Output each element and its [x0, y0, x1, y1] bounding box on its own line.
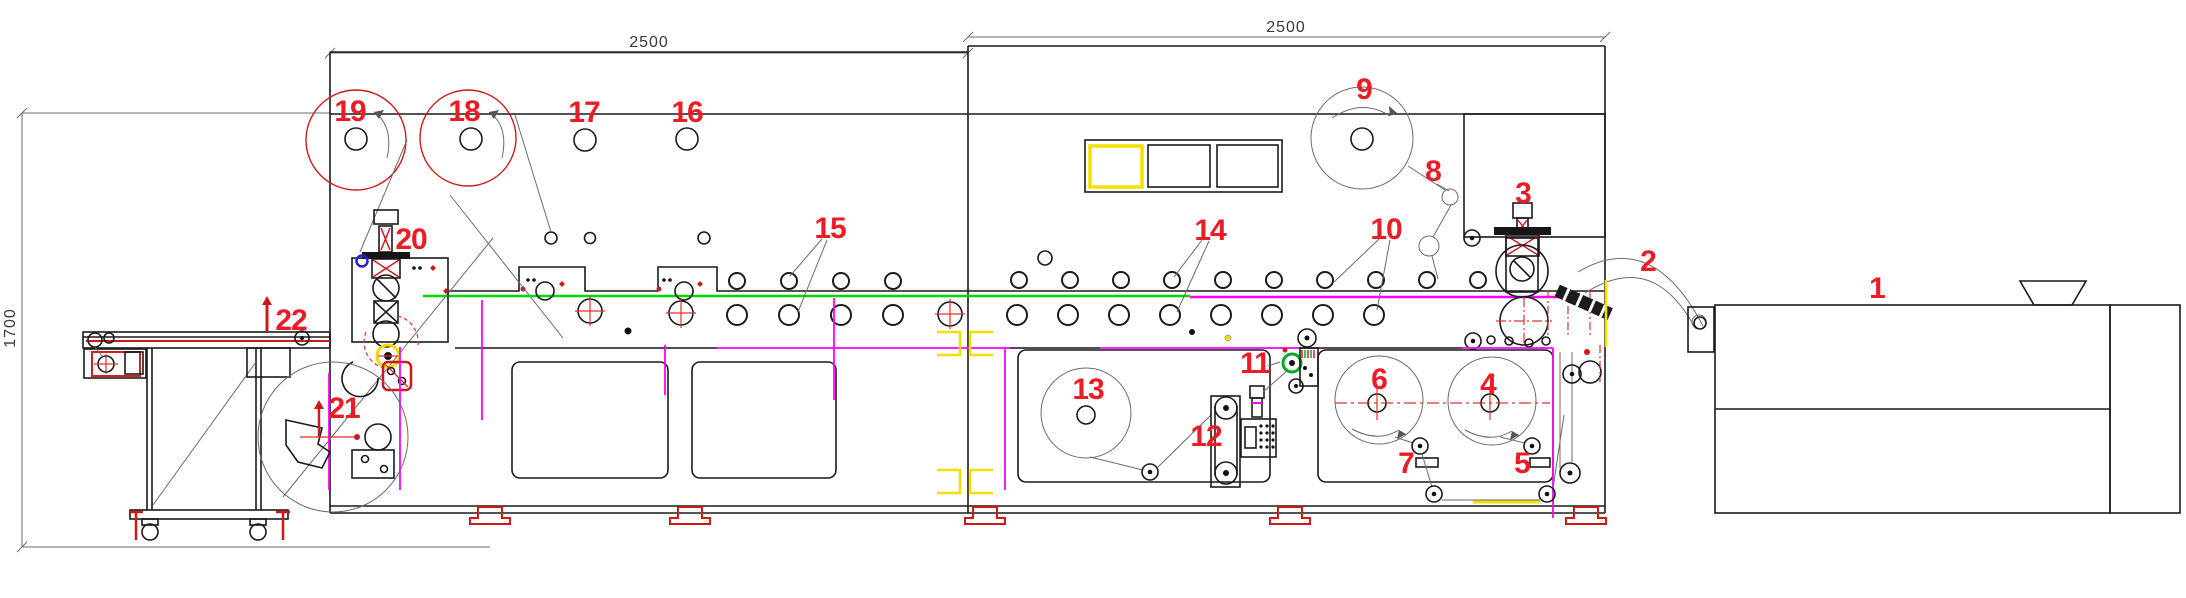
callout-16: 16 — [671, 96, 703, 129]
rotation-arrow-19 — [374, 112, 389, 158]
sealing-hood — [1464, 114, 1605, 237]
film-reel-13: 13 — [1041, 368, 1212, 480]
callout-21: 21 — [328, 392, 360, 425]
caster-wheel — [142, 524, 158, 540]
callout-22: 22 — [275, 304, 307, 337]
control-panel — [1085, 140, 1282, 192]
rotation-arrow-18 — [489, 112, 504, 158]
crosshair-roller — [666, 298, 696, 328]
callout-6: 6 — [1371, 363, 1387, 396]
machine-line-drawing: 2500 2500 1700 — [0, 0, 2186, 598]
panel-button-yellow — [1090, 146, 1142, 187]
callout-9: 9 — [1356, 73, 1372, 106]
callout-2: 2 — [1640, 245, 1656, 278]
infeed-conveyor-22: 22 — [83, 296, 330, 540]
receiver-machine-1: 1 — [1688, 272, 2180, 513]
callout-4: 4 — [1480, 368, 1497, 401]
cad-canvas: 2500 2500 1700 — [0, 0, 2186, 598]
dimension-right-2500: 2500 — [963, 19, 1610, 42]
callout-15: 15 — [814, 212, 846, 245]
callout-10: 10 — [1370, 213, 1402, 246]
unwind-roll-9: 9 — [1311, 73, 1413, 189]
dancer-pulleys-8: 8 — [1408, 155, 1458, 279]
panel-button — [1217, 145, 1278, 187]
belt-feed-unit-12: 12 — [1190, 370, 1288, 487]
panel-button — [1148, 145, 1210, 187]
callout-12: 12 — [1190, 420, 1222, 453]
lower-roller-row — [727, 305, 1384, 325]
crosshair-roller — [575, 296, 605, 326]
dim-right-width: 2500 — [1266, 19, 1306, 36]
cutter-unit-21: 21 — [258, 362, 408, 512]
machine-feet — [470, 507, 1606, 524]
callout-19: 19 — [334, 95, 366, 128]
press-assembly-20: 20 — [342, 210, 449, 397]
roller-16 — [676, 128, 698, 150]
discharge-chute — [1555, 285, 1613, 320]
roller-18 — [460, 128, 482, 150]
callout-5: 5 — [1514, 447, 1530, 480]
callout-18: 18 — [448, 95, 480, 128]
callout-14: 14 — [1194, 214, 1227, 247]
roller-19 — [345, 128, 367, 150]
keypad-dots — [1259, 424, 1274, 448]
callout-17: 17 — [568, 96, 600, 129]
callout-10-group: 10 — [1333, 213, 1402, 310]
transfer-chute-2: 2 — [1578, 245, 1706, 329]
dim-left-width: 2500 — [629, 34, 669, 51]
sensor-unit-11: 11 — [1240, 329, 1318, 393]
callout-8: 8 — [1425, 155, 1441, 188]
roller-17 — [574, 129, 596, 151]
dim-infeed-height: 1700 — [2, 308, 19, 348]
callout-11: 11 — [1240, 347, 1270, 380]
hopper-funnel — [2020, 281, 2086, 305]
callout-13: 13 — [1072, 373, 1104, 406]
dimension-left-2500: 2500 — [325, 34, 973, 58]
guide-rollers-7-5: 7 5 — [1395, 345, 1601, 502]
callout-3: 3 — [1515, 177, 1531, 210]
crosshair-roller — [935, 299, 965, 329]
caster-wheel — [250, 524, 266, 540]
callout-7: 7 — [1398, 447, 1414, 480]
upper-roller-row — [729, 272, 1486, 289]
callout-20: 20 — [395, 223, 427, 256]
callout-1: 1 — [1869, 272, 1885, 305]
yellow-dot — [1225, 335, 1231, 341]
yellow-corner-brackets — [937, 280, 1606, 502]
dimension-infeed-1700: 1700 — [2, 108, 27, 552]
web-path-line — [515, 115, 551, 232]
sealing-station-3: 3 — [1464, 177, 1613, 349]
tape-rolls-6-4: 6 4 — [1335, 356, 1550, 445]
